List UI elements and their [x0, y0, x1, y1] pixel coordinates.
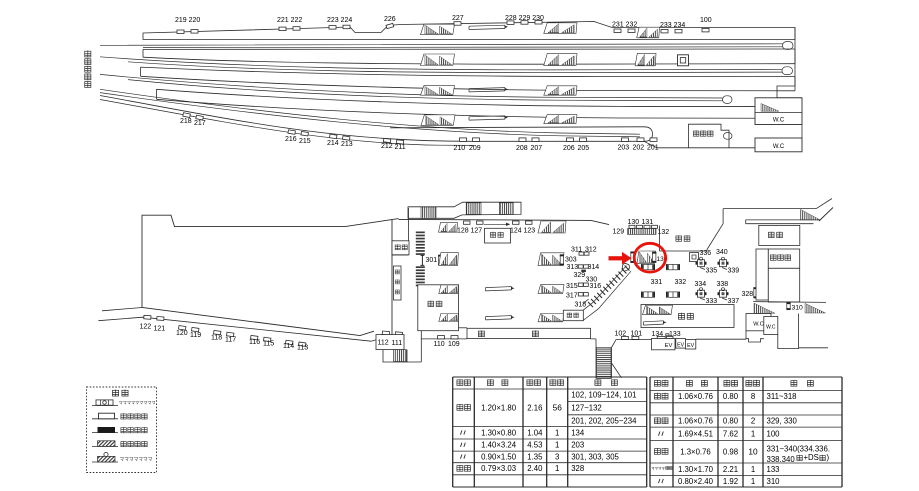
- svg-text:2: 2: [751, 417, 755, 426]
- svg-text:310: 310: [767, 477, 781, 486]
- svg-text:127~132: 127~132: [571, 404, 602, 413]
- svg-text:331~340(334.336.: 331~340(334.336.: [767, 445, 831, 454]
- svg-text:340: 340: [716, 249, 728, 256]
- svg-text:1.20×1.80: 1.20×1.80: [481, 403, 517, 412]
- svg-text:133: 133: [767, 465, 780, 474]
- svg-text:122: 122: [140, 323, 152, 330]
- svg-text:0.80: 0.80: [723, 392, 739, 401]
- svg-text:10: 10: [748, 446, 758, 456]
- svg-text:110: 110: [434, 341, 445, 348]
- svg-text:1: 1: [751, 477, 755, 486]
- svg-text:114: 114: [283, 343, 294, 350]
- svg-text:214: 214: [327, 140, 339, 147]
- svg-text:233 234: 233 234: [660, 22, 685, 29]
- svg-text:7.62: 7.62: [723, 429, 738, 438]
- svg-text:115: 115: [263, 341, 274, 348]
- svg-text:212: 212: [381, 143, 393, 150]
- svg-text:EV: EV: [687, 343, 694, 349]
- svg-text:+DS: +DS: [804, 453, 819, 462]
- svg-text:315: 315: [566, 283, 578, 290]
- svg-text:328: 328: [571, 464, 584, 473]
- svg-text:310: 310: [792, 305, 804, 312]
- svg-text:1: 1: [555, 464, 559, 473]
- svg-text:1.30×1.70: 1.30×1.70: [678, 465, 714, 474]
- svg-text:124: 124: [510, 228, 522, 235]
- svg-text:331: 331: [651, 279, 663, 286]
- svg-text:216: 216: [285, 136, 297, 143]
- svg-text:333: 333: [706, 298, 718, 305]
- svg-text:335: 335: [706, 267, 718, 274]
- svg-text:4.53: 4.53: [527, 441, 542, 450]
- svg-text:311~318: 311~318: [767, 392, 797, 401]
- svg-text:W.C: W.C: [773, 117, 785, 123]
- svg-text:213: 213: [341, 141, 353, 148]
- svg-text:120: 120: [176, 330, 188, 337]
- svg-text:329, 330: 329, 330: [767, 417, 798, 426]
- svg-text:210: 210: [454, 145, 466, 152]
- svg-text:303: 303: [565, 257, 577, 264]
- svg-text:1.3×0.76: 1.3×0.76: [680, 447, 711, 456]
- svg-text:0.98: 0.98: [723, 447, 738, 456]
- svg-text:1.06×0.76: 1.06×0.76: [678, 417, 713, 426]
- svg-text:336: 336: [700, 250, 712, 257]
- svg-text:218: 218: [180, 118, 192, 125]
- svg-text:203: 203: [571, 441, 584, 450]
- svg-text:209: 209: [469, 145, 481, 152]
- svg-text:3: 3: [555, 452, 559, 461]
- svg-text:328: 328: [742, 291, 754, 298]
- svg-text:1.30×0.80: 1.30×0.80: [481, 428, 517, 437]
- svg-text:0.80×2.40: 0.80×2.40: [678, 477, 714, 486]
- svg-text:116: 116: [249, 339, 260, 346]
- svg-text:119: 119: [190, 332, 201, 339]
- svg-text:56: 56: [553, 402, 563, 412]
- svg-text:316: 316: [590, 283, 602, 290]
- svg-text:112: 112: [378, 339, 389, 346]
- svg-text:329: 329: [574, 272, 586, 279]
- svg-text:1.06×0.76: 1.06×0.76: [678, 392, 713, 401]
- svg-text:206: 206: [563, 145, 575, 152]
- svg-text:2.16: 2.16: [527, 403, 542, 412]
- svg-text:332: 332: [675, 279, 687, 286]
- svg-text:338: 338: [717, 281, 729, 288]
- svg-text:1: 1: [751, 465, 755, 474]
- svg-text:111: 111: [392, 340, 403, 347]
- svg-text:1.92: 1.92: [723, 477, 738, 486]
- svg-text:0.80: 0.80: [723, 417, 739, 426]
- svg-text:226: 226: [384, 16, 396, 23]
- svg-text:231 232: 231 232: [612, 22, 637, 29]
- svg-text:334: 334: [695, 281, 707, 288]
- svg-text:W.C: W.C: [773, 144, 785, 150]
- svg-text:207: 207: [531, 145, 543, 152]
- svg-text:100: 100: [767, 429, 781, 438]
- svg-text:217: 217: [194, 120, 206, 127]
- svg-text:208: 208: [516, 145, 528, 152]
- svg-text:1: 1: [555, 428, 559, 437]
- svg-text:338.340: 338.340: [767, 455, 796, 464]
- svg-text:201: 201: [647, 145, 659, 152]
- svg-text:215: 215: [299, 138, 311, 145]
- svg-text:102, 109~124, 101: 102, 109~124, 101: [571, 391, 636, 400]
- svg-text:100: 100: [700, 17, 712, 24]
- svg-text:1: 1: [555, 441, 559, 450]
- svg-text:317: 317: [566, 293, 578, 300]
- svg-text:1: 1: [751, 429, 755, 438]
- svg-text:1.69×4.51: 1.69×4.51: [678, 429, 713, 438]
- svg-text:2.40: 2.40: [527, 464, 543, 473]
- svg-text:109: 109: [448, 341, 460, 348]
- svg-text:227: 227: [452, 15, 464, 22]
- svg-text:): ): [827, 453, 830, 462]
- svg-text:1.35: 1.35: [527, 452, 543, 461]
- svg-text:W.C: W.C: [766, 325, 776, 331]
- svg-text:123: 123: [524, 228, 536, 235]
- svg-text:8: 8: [751, 392, 755, 401]
- svg-text:203: 203: [618, 145, 630, 152]
- svg-text:0.90×1.50: 0.90×1.50: [481, 452, 517, 461]
- svg-text:219 220: 219 220: [175, 17, 200, 24]
- svg-text:118: 118: [211, 335, 222, 342]
- svg-text:2.21: 2.21: [723, 465, 738, 474]
- svg-text:205: 205: [578, 145, 590, 152]
- svg-text:128: 128: [457, 228, 469, 235]
- svg-text:202: 202: [633, 145, 645, 152]
- svg-text:314: 314: [588, 264, 600, 271]
- svg-text:1.04: 1.04: [527, 428, 543, 437]
- svg-text:117: 117: [225, 337, 236, 344]
- svg-text:223 224: 223 224: [327, 17, 352, 24]
- svg-text:211: 211: [395, 144, 406, 151]
- svg-text:134: 134: [571, 428, 585, 437]
- svg-text:201, 202, 205~234: 201, 202, 205~234: [571, 416, 637, 425]
- svg-text:301: 301: [426, 257, 438, 264]
- svg-text:EV: EV: [665, 343, 673, 349]
- svg-text:EV: EV: [677, 342, 684, 348]
- svg-text:129: 129: [613, 229, 625, 236]
- svg-text:313: 313: [567, 264, 579, 271]
- svg-text:127: 127: [471, 228, 483, 235]
- svg-text:1.40×3.24: 1.40×3.24: [481, 441, 517, 450]
- svg-text:339: 339: [728, 267, 740, 274]
- svg-text:113: 113: [297, 345, 308, 352]
- svg-text:W.C: W.C: [753, 321, 763, 327]
- svg-text:121: 121: [154, 326, 166, 333]
- svg-text:301, 303, 305: 301, 303, 305: [571, 452, 619, 461]
- svg-text:0.79×3.03: 0.79×3.03: [481, 464, 516, 473]
- svg-text:221 222: 221 222: [277, 17, 302, 24]
- svg-text:337: 337: [728, 298, 740, 305]
